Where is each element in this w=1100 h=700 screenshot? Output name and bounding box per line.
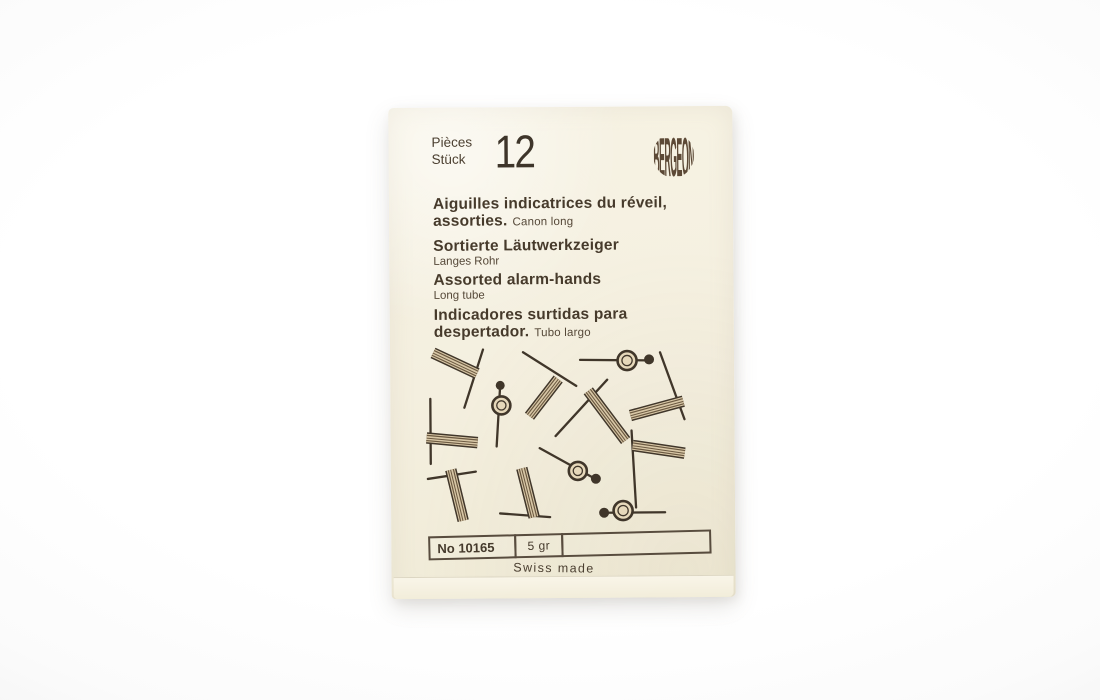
photo-background: Pièces Stück 12 BERGEON Aiguilles indica…	[0, 0, 1100, 700]
alarm-hands-illustration	[419, 335, 740, 537]
ring-hand-drawing	[580, 351, 654, 371]
tube-hand-drawing	[428, 469, 476, 522]
title-en: Assorted alarm-hands	[433, 270, 709, 289]
table-cell-ref-no: No 10165	[428, 534, 517, 560]
tube-hand-drawing	[632, 430, 686, 507]
ring-hand-drawing	[540, 448, 601, 484]
piece-count-label-fr: Pièces	[431, 134, 472, 151]
product-packet: Pièces Stück 12 BERGEON Aiguilles indica…	[388, 106, 735, 599]
origin-label: Swiss made	[412, 559, 695, 577]
tube-hand-drawing	[555, 380, 628, 443]
title-en-note: Long tube	[434, 287, 710, 304]
bergeon-logo-icon: BERGEON	[651, 132, 695, 178]
bergeon-logo-text: BERGEON	[653, 132, 694, 178]
title-es-line1: Indicadores surtidas para	[434, 305, 710, 324]
piece-count-value: 12	[494, 128, 534, 174]
title-fr-line2: assorties.Canon long	[433, 211, 709, 231]
ring-hand-drawing	[492, 381, 510, 447]
tube-hand-drawing	[523, 352, 576, 418]
title-de-note: Langes Rohr	[433, 253, 709, 270]
piece-count-label-de: Stück	[432, 151, 473, 168]
ring-hand-drawing	[599, 501, 665, 520]
title-de: Sortierte Läutwerkzeiger	[433, 236, 709, 255]
piece-count-label: Pièces Stück	[431, 134, 472, 168]
product-title-block: Aiguilles indicatrices du réveil, assort…	[433, 194, 710, 342]
packet-bottom-fold	[394, 575, 734, 599]
table-cell-blank	[561, 529, 712, 557]
title-fr-line1: Aiguilles indicatrices du réveil,	[433, 194, 709, 213]
title-fr-line2-bold: assorties.	[433, 212, 508, 230]
tube-hand-drawing	[432, 350, 484, 408]
tube-hand-drawing	[426, 399, 478, 464]
table-cell-weight: 5 gr	[514, 533, 564, 558]
title-fr-note: Canon long	[512, 216, 573, 228]
tube-hand-drawing	[500, 467, 550, 518]
